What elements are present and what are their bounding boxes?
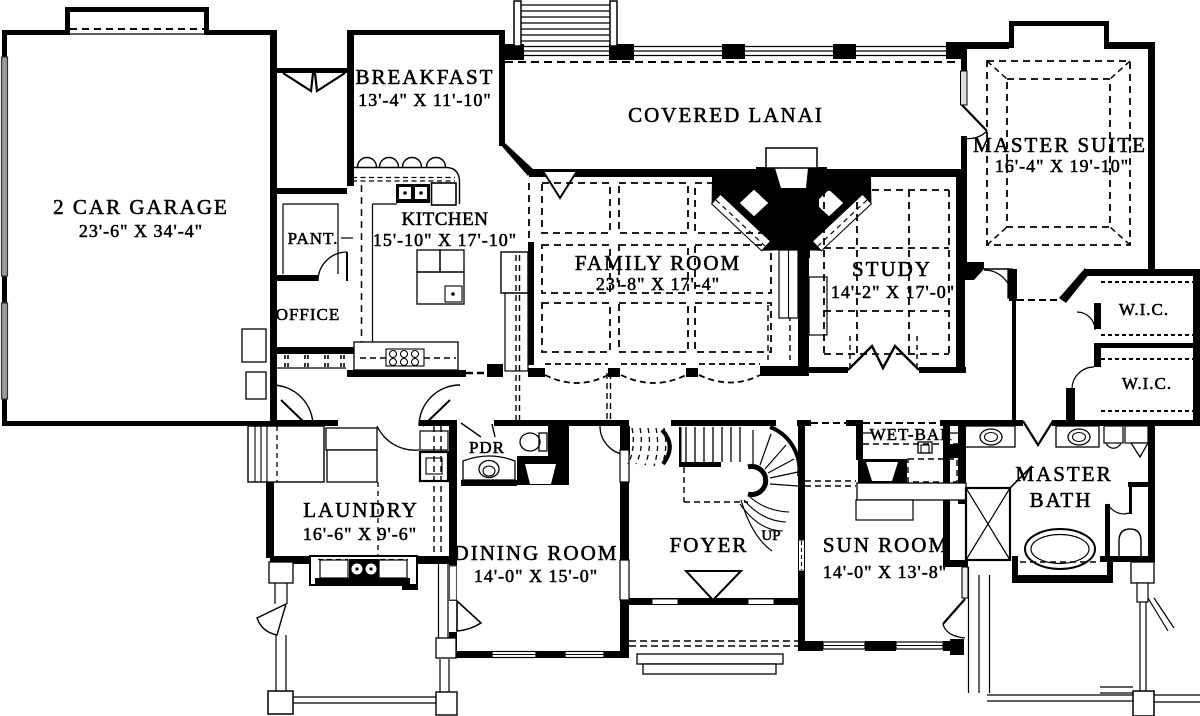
svg-text:OFFICE: OFFICE	[276, 305, 341, 324]
svg-text:13'-4" X 11'-10": 13'-4" X 11'-10"	[358, 90, 492, 110]
svg-text:W.I.C.: W.I.C.	[1119, 300, 1169, 319]
svg-text:DINING ROOM: DINING ROOM	[454, 541, 619, 565]
svg-text:14'-0" X 15'-0": 14'-0" X 15'-0"	[474, 566, 598, 586]
svg-text:WET-BAR: WET-BAR	[870, 425, 953, 444]
svg-text:KITCHEN: KITCHEN	[402, 209, 489, 230]
svg-text:14'-0" X 13'-8": 14'-0" X 13'-8"	[823, 562, 947, 582]
svg-text:W.I.C.: W.I.C.	[1122, 374, 1172, 393]
svg-text:FAMILY ROOM: FAMILY ROOM	[575, 251, 741, 275]
svg-text:SUN ROOM: SUN ROOM	[823, 533, 949, 557]
svg-text:UP: UP	[761, 528, 780, 544]
svg-text:16'-4" X 19'-10": 16'-4" X 19'-10"	[995, 156, 1129, 176]
svg-text:FOYER: FOYER	[670, 533, 749, 557]
svg-text:23'-8" X 17'-4": 23'-8" X 17'-4"	[596, 274, 720, 294]
svg-text:STUDY: STUDY	[852, 257, 932, 281]
svg-text:LAUNDRY: LAUNDRY	[303, 498, 419, 522]
svg-text:PANT.: PANT.	[288, 229, 339, 248]
svg-text:15'-10" X 17'-10": 15'-10" X 17'-10"	[373, 230, 517, 250]
svg-text:23'-6" X 34'-4": 23'-6" X 34'-4"	[79, 221, 203, 241]
svg-text:MASTER SUITE: MASTER SUITE	[973, 133, 1147, 157]
svg-text:BREAKFAST: BREAKFAST	[356, 65, 495, 89]
svg-text:MASTER: MASTER	[1015, 462, 1112, 486]
svg-text:2 CAR GARAGE: 2 CAR GARAGE	[53, 195, 229, 219]
svg-text:16'-6" X 9'-6": 16'-6" X 9'-6"	[303, 524, 417, 544]
svg-text:14'-2" X 17'-0": 14'-2" X 17'-0"	[831, 282, 955, 302]
svg-text:PDR: PDR	[469, 438, 505, 457]
svg-text:BATH: BATH	[1030, 488, 1093, 512]
svg-text:COVERED LANAI: COVERED LANAI	[628, 103, 824, 127]
